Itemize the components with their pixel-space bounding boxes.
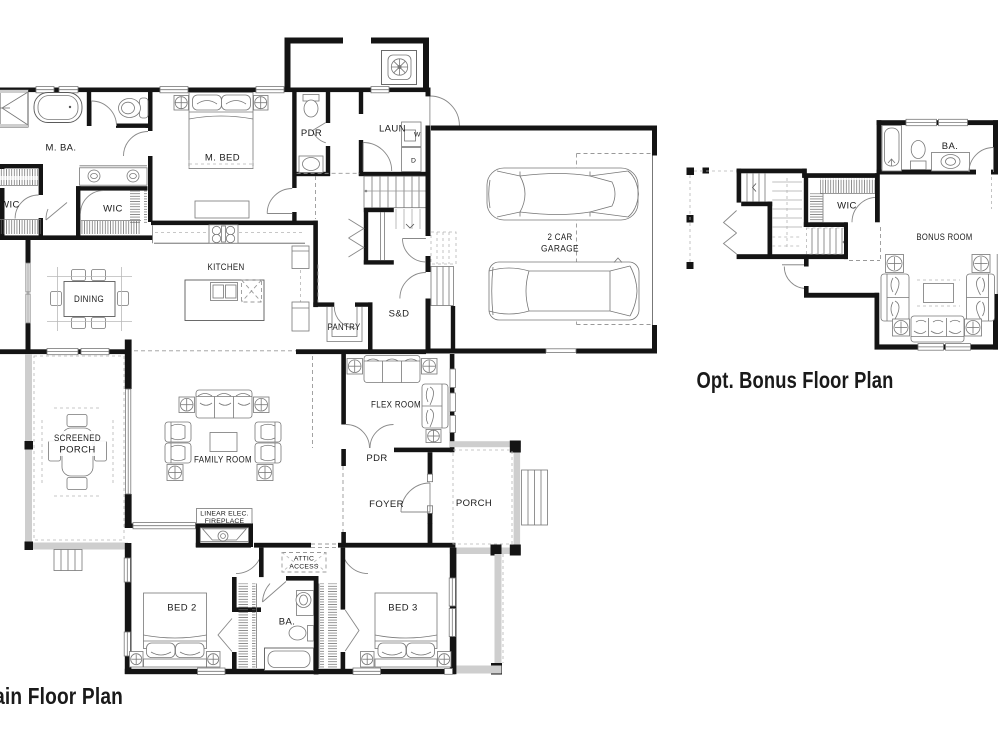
svg-text:PORCH: PORCH <box>59 445 95 456</box>
svg-text:M. BED: M. BED <box>205 153 240 164</box>
svg-text:KITCHEN: KITCHEN <box>208 262 245 273</box>
svg-text:SCREENED: SCREENED <box>54 433 101 444</box>
svg-text:ACCESS: ACCESS <box>289 564 318 571</box>
svg-text:BA.: BA. <box>942 141 959 152</box>
svg-text:LINEAR ELEC.: LINEAR ELEC. <box>200 511 249 518</box>
svg-text:FAMILY ROOM: FAMILY ROOM <box>194 455 252 466</box>
svg-text:BED 3: BED 3 <box>388 603 417 614</box>
svg-text:PANTRY: PANTRY <box>328 322 361 333</box>
svg-text:PDR: PDR <box>301 128 322 139</box>
svg-text:FOYER: FOYER <box>369 499 404 510</box>
svg-text:LAUN: LAUN <box>379 124 406 135</box>
svg-text:WIC: WIC <box>0 200 20 211</box>
svg-text:GARAGE: GARAGE <box>541 244 579 255</box>
svg-text:BA.: BA. <box>279 617 296 628</box>
svg-text:WIC: WIC <box>103 204 123 215</box>
svg-text:FLEX ROOM: FLEX ROOM <box>371 400 421 411</box>
svg-text:M. BA.: M. BA. <box>46 143 77 154</box>
svg-text:ATTIC: ATTIC <box>294 556 314 563</box>
svg-text:D: D <box>411 158 416 165</box>
svg-text:Opt. Bonus Floor Plan: Opt. Bonus Floor Plan <box>697 367 894 393</box>
svg-text:BONUS ROOM: BONUS ROOM <box>917 232 973 243</box>
svg-text:PDR: PDR <box>366 453 387 464</box>
svg-text:DINING: DINING <box>74 294 104 305</box>
svg-text:W: W <box>414 132 421 139</box>
svg-text:Main Floor Plan: Main Floor Plan <box>0 683 123 709</box>
svg-text:2 CAR: 2 CAR <box>548 232 573 243</box>
svg-text:S&D: S&D <box>389 309 410 320</box>
svg-text:FIREPLACE: FIREPLACE <box>205 518 245 525</box>
svg-text:WIC: WIC <box>837 201 857 212</box>
svg-text:BED 2: BED 2 <box>167 603 196 614</box>
svg-text:PORCH: PORCH <box>456 498 492 509</box>
